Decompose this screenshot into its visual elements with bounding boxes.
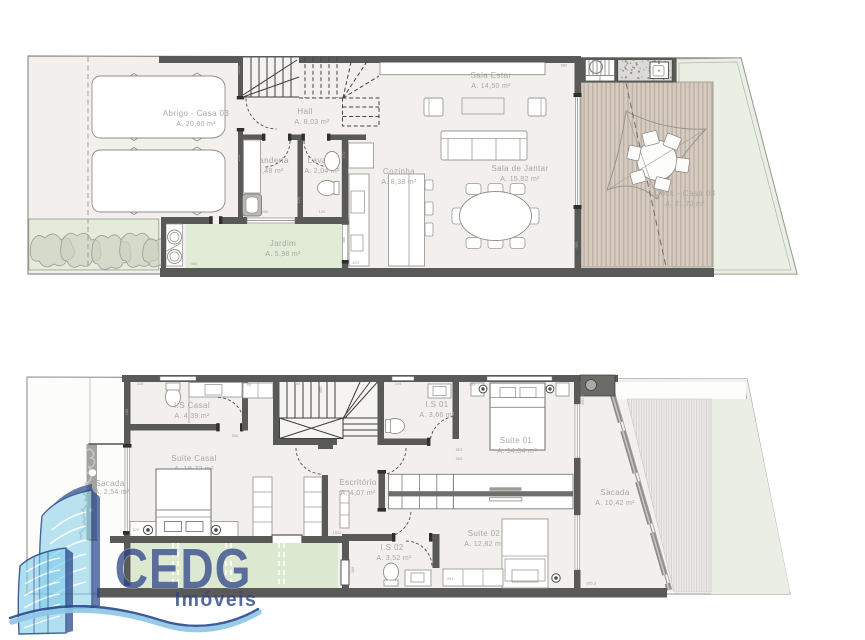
svg-text:333: 333 <box>469 382 476 387</box>
svg-text:480: 480 <box>318 386 323 393</box>
svg-text:Suite 01: Suite 01 <box>500 436 533 445</box>
svg-text:340: 340 <box>232 433 239 438</box>
svg-text:265,3: 265,3 <box>586 581 597 586</box>
svg-text:188: 188 <box>124 408 129 415</box>
svg-text:576: 576 <box>133 527 140 532</box>
svg-text:672: 672 <box>353 260 360 265</box>
svg-text:A. 8,38 m²: A. 8,38 m² <box>381 179 417 186</box>
svg-text:245: 245 <box>395 381 402 386</box>
svg-text:4935: 4935 <box>236 65 241 75</box>
svg-text:485: 485 <box>341 236 346 243</box>
svg-text:120: 120 <box>296 196 301 203</box>
svg-text:Sacada: Sacada <box>600 488 630 497</box>
svg-text:563: 563 <box>456 456 463 461</box>
svg-text:I.S 02: I.S 02 <box>380 543 403 552</box>
svg-text:A. 14,50 m²: A. 14,50 m² <box>471 83 511 90</box>
svg-text:A. 21,70 m²: A. 21,70 m² <box>665 201 705 208</box>
svg-text:Escritório: Escritório <box>339 478 376 487</box>
svg-text:Suite Casal: Suite Casal <box>171 454 216 463</box>
svg-text:I.S 01: I.S 01 <box>425 400 448 409</box>
svg-text:A. 3,66 m²: A. 3,66 m² <box>419 412 455 419</box>
svg-text:Suite 02: Suite 02 <box>468 529 501 538</box>
svg-text:Sala Estar: Sala Estar <box>471 71 512 80</box>
svg-text:269: 269 <box>294 381 301 386</box>
svg-text:Deck - Casa 03: Deck - Casa 03 <box>655 189 716 198</box>
svg-text:I.S Casal: I.S Casal <box>174 401 210 410</box>
svg-text:A. 5,98 m²: A. 5,98 m² <box>265 251 301 258</box>
svg-text:A. 4,07 m²: A. 4,07 m² <box>340 490 376 497</box>
svg-text:Cozinha: Cozinha <box>383 167 415 176</box>
svg-text:228: 228 <box>236 154 241 161</box>
svg-text:A. 2,54 m²: A. 2,54 m² <box>94 489 130 496</box>
svg-text:Hall: Hall <box>297 107 312 116</box>
svg-text:328: 328 <box>137 381 144 386</box>
svg-text:A. 8,03 m²: A. 8,03 m² <box>294 119 330 126</box>
svg-text:A. 14,04 m²: A. 14,04 m² <box>497 448 537 455</box>
svg-text:663: 663 <box>456 447 463 452</box>
svg-text:Sala de Jantar: Sala de Jantar <box>491 164 548 173</box>
svg-text:080: 080 <box>574 241 579 248</box>
svg-text:90: 90 <box>247 382 252 387</box>
svg-text:560,3: 560,3 <box>580 394 585 405</box>
svg-text:Jardim: Jardim <box>270 239 296 248</box>
svg-text:A. 4,39 m²: A. 4,39 m² <box>174 413 210 420</box>
svg-text:A. 10,42 m²: A. 10,42 m² <box>595 500 635 507</box>
svg-text:A. 15,82 m²: A. 15,82 m² <box>500 176 540 183</box>
svg-text:982: 982 <box>561 63 568 68</box>
svg-text:460: 460 <box>191 261 198 266</box>
svg-text:A. 20,80 m²: A. 20,80 m² <box>176 121 216 128</box>
svg-text:391: 391 <box>447 576 454 581</box>
svg-text:Sacada: Sacada <box>95 479 125 488</box>
svg-text:1522: 1522 <box>333 530 343 535</box>
svg-text:288: 288 <box>350 566 355 573</box>
svg-text:Abrigo - Casa 03: Abrigo - Casa 03 <box>163 109 230 118</box>
svg-text:170: 170 <box>341 151 346 158</box>
svg-text:A. 12,82 m²: A. 12,82 m² <box>464 541 504 548</box>
svg-text:255: 255 <box>262 209 269 214</box>
svg-text:A. 3,52 m²: A. 3,52 m² <box>376 555 412 562</box>
svg-text:Imóveis: Imóveis <box>175 589 257 612</box>
svg-text:120: 120 <box>319 209 326 214</box>
